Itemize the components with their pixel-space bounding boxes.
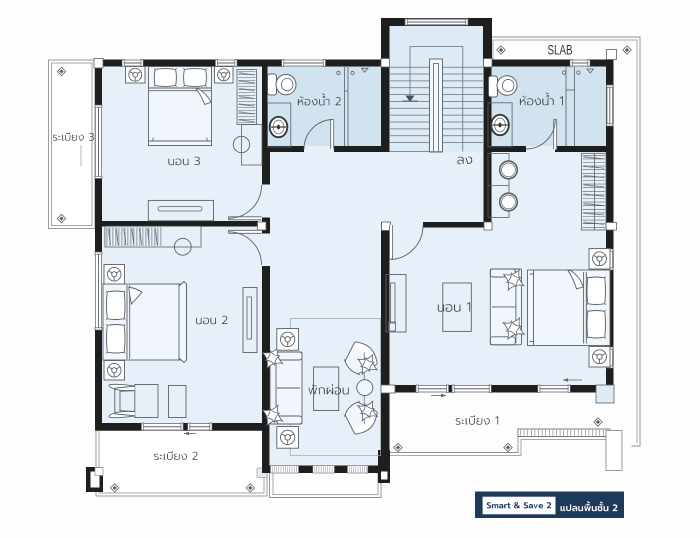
svg-text:SLAB: SLAB <box>548 43 573 58</box>
